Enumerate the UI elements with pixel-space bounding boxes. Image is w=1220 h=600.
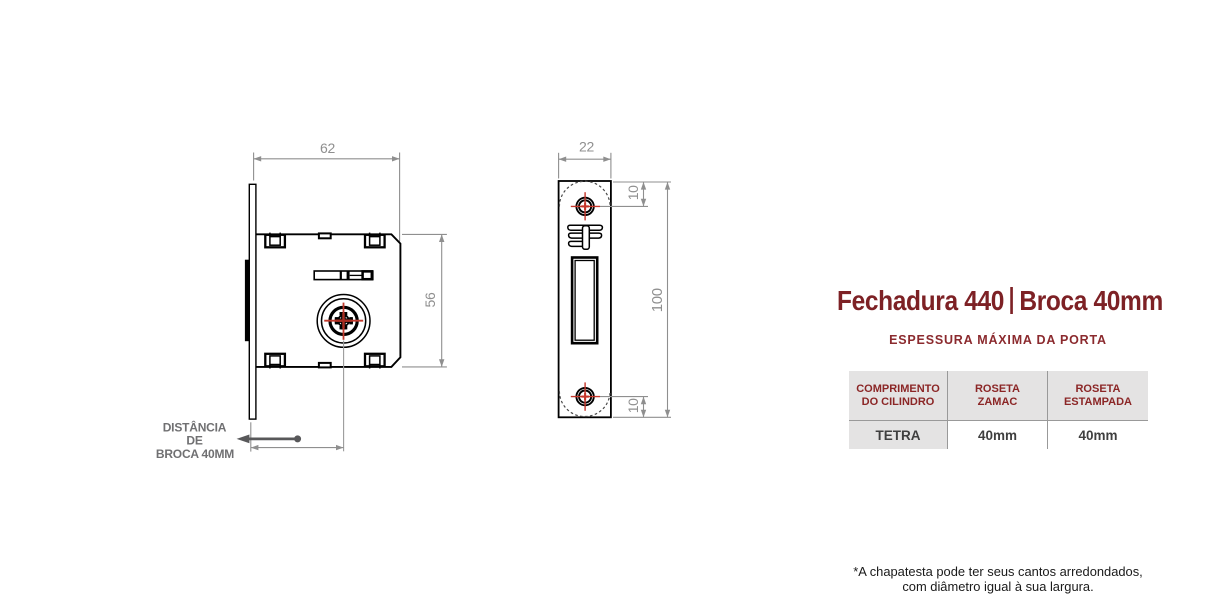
svg-text:100: 100 bbox=[649, 288, 666, 312]
svg-text:56: 56 bbox=[422, 292, 438, 307]
svg-text:62: 62 bbox=[320, 140, 335, 156]
svg-text:DE: DE bbox=[186, 434, 202, 448]
svg-text:BROCA 40MM: BROCA 40MM bbox=[156, 447, 234, 461]
svg-text:10: 10 bbox=[625, 398, 641, 413]
svg-text:DISTÂNCIA: DISTÂNCIA bbox=[163, 420, 227, 435]
svg-text:10: 10 bbox=[625, 185, 641, 200]
svg-text:22: 22 bbox=[579, 139, 594, 155]
